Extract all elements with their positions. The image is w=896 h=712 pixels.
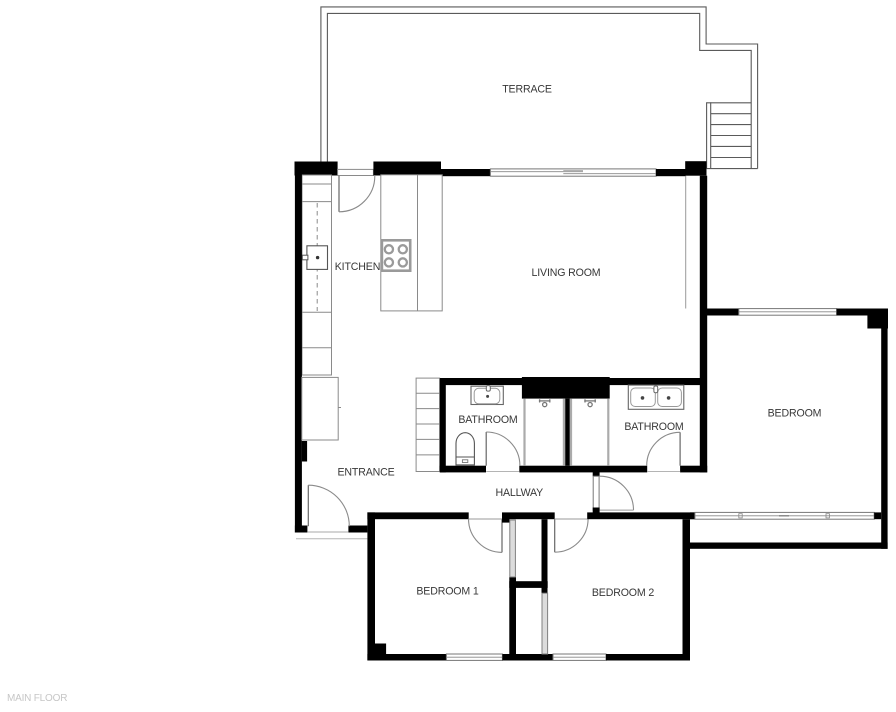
svg-text:TERRACE: TERRACE [502, 83, 552, 95]
svg-text:HALLWAY: HALLWAY [495, 487, 543, 499]
svg-text:BEDROOM 1: BEDROOM 1 [416, 585, 478, 597]
svg-text:BEDROOM 2: BEDROOM 2 [592, 587, 654, 599]
svg-text:MAIN FLOOR: MAIN FLOOR [7, 693, 67, 704]
svg-text:ENTRANCE: ENTRANCE [337, 466, 394, 478]
svg-text:BATHROOM: BATHROOM [458, 414, 517, 426]
svg-text:BATHROOM: BATHROOM [624, 421, 683, 433]
svg-text:LIVING ROOM: LIVING ROOM [532, 267, 601, 279]
svg-text:BEDROOM: BEDROOM [768, 408, 822, 420]
svg-text:KITCHEN: KITCHEN [335, 261, 380, 273]
